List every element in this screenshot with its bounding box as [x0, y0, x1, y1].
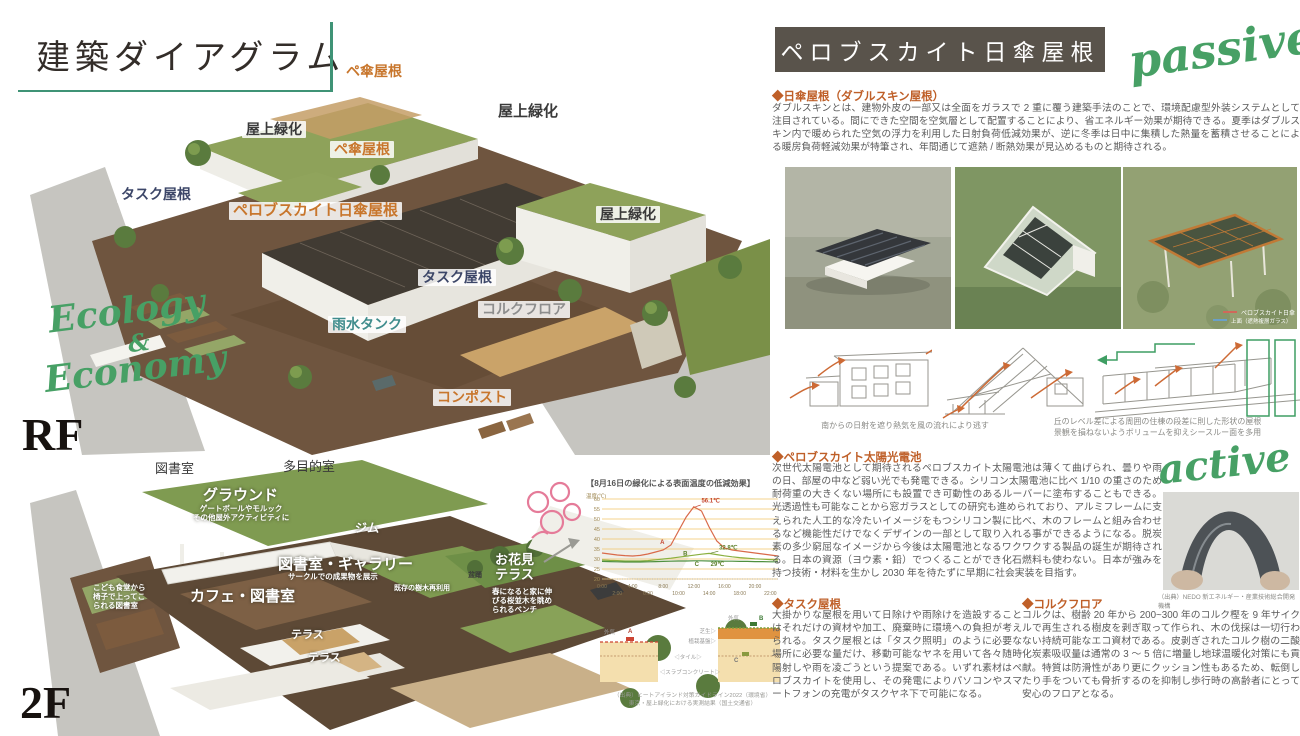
svg-text:35: 35	[594, 547, 600, 553]
f2-label-hanami-terrace: お花見 テラス	[495, 552, 534, 583]
sketch-glass-slope-house	[935, 334, 1095, 420]
svg-text:14:00: 14:00	[703, 591, 716, 597]
cross-label-slab: ◁スラブコンクリート▷	[660, 668, 721, 676]
svg-text:25: 25	[594, 567, 600, 573]
photo-model-greenhouse	[955, 167, 1121, 329]
rf-label-green-roof-left: 屋上緑化	[242, 121, 306, 138]
cross-section-source-caption: （出典）ヒートアイランド対策ガイドライン2022（環境省） 東京・屋上緑化におけ…	[585, 692, 800, 708]
sketch-terraced-roof-building	[1095, 334, 1300, 422]
f2-label-existing-trees: 既存の樹木再利用	[394, 585, 450, 593]
sketch-double-skin-house	[782, 336, 932, 418]
f2-label-kids-cafeteria-note: こども食堂から 椅子で上ってこ られる図書室	[93, 584, 146, 611]
f2-label-gallery-note: サークルでの成果物を展示	[288, 573, 378, 582]
photo-flexible-solar-cell	[1163, 492, 1299, 590]
svg-text:45: 45	[594, 527, 600, 533]
f2-label-terrace-1: テラス	[291, 629, 324, 642]
rf-label-pe-umbrella-roof-top: ペ傘屋根	[346, 63, 402, 80]
rf-label-task-roof-left: タスク屋根	[117, 186, 195, 203]
cross-label-base: 植栽基盤▷	[688, 637, 716, 645]
svg-text:20:00: 20:00	[749, 584, 762, 590]
svg-text:20: 20	[594, 577, 600, 583]
nedo-source-caption: （出典）NEDO 新エネルギー・産業技術総合開発機構	[1158, 592, 1300, 610]
right-panel-banner: ペロブスカイト日傘屋根	[775, 27, 1105, 72]
floor-label-2f: 2F	[20, 676, 71, 729]
svg-text:10:00: 10:00	[672, 591, 685, 597]
svg-text:55: 55	[594, 507, 600, 513]
svg-text:12:00: 12:00	[688, 584, 701, 590]
sketch-caption-right: 丘のレベル差による周囲の住棟の段差に則した形状の屋根 景観を損ねないようボリュー…	[1040, 417, 1275, 439]
rf-label-cork-floor: コルクフロア	[478, 301, 570, 318]
section-body-cork-floor: コルクは、樹齢 20 年から 200~300 年のコルク樫を 9 年サイクルで再…	[1022, 609, 1300, 701]
svg-text:C: C	[695, 562, 700, 568]
section-body-parasol-roof: ダブルスキンとは、建物外皮の一部又は全面をガラスで 2 重に覆う建築手法のことで…	[772, 102, 1300, 155]
rf-label-green-roof-right: 屋上緑化	[498, 103, 558, 121]
svg-text:60: 60	[594, 497, 600, 503]
cross-label-tile: ◁タイル▷	[674, 653, 702, 661]
rf-label-pe-umbrella-roof-mid: ペ傘屋根	[330, 141, 394, 158]
svg-text:50: 50	[594, 517, 600, 523]
hanami-arrow-icon	[540, 534, 582, 566]
photo3-caption-line1: ペロブスカイト日傘	[1241, 309, 1295, 317]
f2-label-ground: グラウンド	[203, 487, 278, 505]
photo3-caption-line2: 上面（遮熱複層ガラス）	[1231, 317, 1291, 325]
sketch-caption-left: 南からの日射を遮り熱気を風の流れにより逃す	[790, 421, 1020, 432]
f2-label-terrace-2: テラス	[308, 652, 341, 665]
active-script: active	[1156, 433, 1293, 494]
svg-text:6:00: 6:00	[643, 591, 653, 597]
svg-text:56.1℃: 56.1℃	[701, 498, 720, 505]
f2-label-gym: ジム	[355, 521, 379, 535]
cross-marker-a: A	[628, 629, 633, 635]
section-body-task-roof: 大掛かりな屋根を用いて日除けや雨除けを造設することはそれだけの資材や加工、廃棄時…	[772, 609, 1022, 701]
svg-text:30: 30	[594, 557, 600, 563]
cross-marker-b: B	[759, 616, 764, 622]
rf-label-perovskite-roof: ペロブスカイト日傘屋根	[229, 202, 402, 220]
f2-label-ground-note: ゲートボールやモルック その他屋外アクティビティに	[193, 505, 289, 523]
rf-label-rainwater-tank: 雨水タンク	[328, 316, 406, 333]
roof-cross-section-diagram: 外気 A 外気 B C 芝生▷ 植栽基盤▷ ◁タイル▷ ◁スラブコンクリート▷	[592, 612, 792, 690]
passive-script: passive	[1125, 9, 1300, 89]
svg-text:A: A	[660, 540, 665, 546]
section-body-perovskite: 次世代太陽電池として期待されるペロブスカイト太陽電池は薄くて曲げられ、曇りや雨の…	[772, 462, 1162, 580]
svg-text:40: 40	[594, 537, 600, 543]
svg-text:32.8℃: 32.8℃	[719, 544, 738, 551]
photo-model-double-skin	[785, 167, 951, 329]
surface-temperature-chart: 温度(℃)2025303540455055600:004:008:0012:00…	[584, 491, 784, 599]
f2-label-cafe-library: カフェ・図書室	[190, 588, 295, 606]
svg-text:8:00: 8:00	[658, 584, 668, 590]
floor-label-rf: RF	[22, 408, 83, 461]
svg-text:2:00: 2:00	[612, 591, 622, 597]
svg-text:16:00: 16:00	[718, 584, 731, 590]
f2-label-library-top: 図書室	[155, 461, 194, 476]
presentation-board: 建築ダイアグラム	[0, 0, 1300, 736]
rf-label-green-roof-far-right: 屋上緑化	[596, 206, 660, 223]
chart-title: 【8月16日の緑化による表面温度の低減効果】	[586, 477, 791, 489]
svg-text:18:00: 18:00	[733, 591, 746, 597]
f2-label-hanami-note: 春になると家に伸 びる桜並木を眺め られるベンチ	[492, 588, 552, 615]
svg-text:29℃: 29℃	[711, 561, 725, 568]
f2-label-bon-dance: 盆踊	[468, 572, 482, 580]
photo-model-perovskite-parasol: ペロブスカイト日傘 上面（遮熱複層ガラス）	[1123, 167, 1297, 329]
cross-label-turf: 芝生▷	[699, 627, 716, 635]
svg-text:4:00: 4:00	[628, 584, 638, 590]
rf-label-compost: コンポスト	[433, 389, 511, 406]
f2-label-multipurpose: 多目的室	[283, 459, 335, 474]
cross-marker-c: C	[734, 658, 739, 664]
cross-outside-air-right: 外気	[728, 614, 740, 622]
rf-axonometric-rendering	[30, 55, 770, 455]
svg-text:0:00: 0:00	[597, 584, 607, 590]
svg-text:B: B	[683, 551, 688, 557]
rf-label-task-roof-center: タスク屋根	[418, 269, 496, 286]
cross-outside-air-left: 外気	[604, 628, 616, 636]
